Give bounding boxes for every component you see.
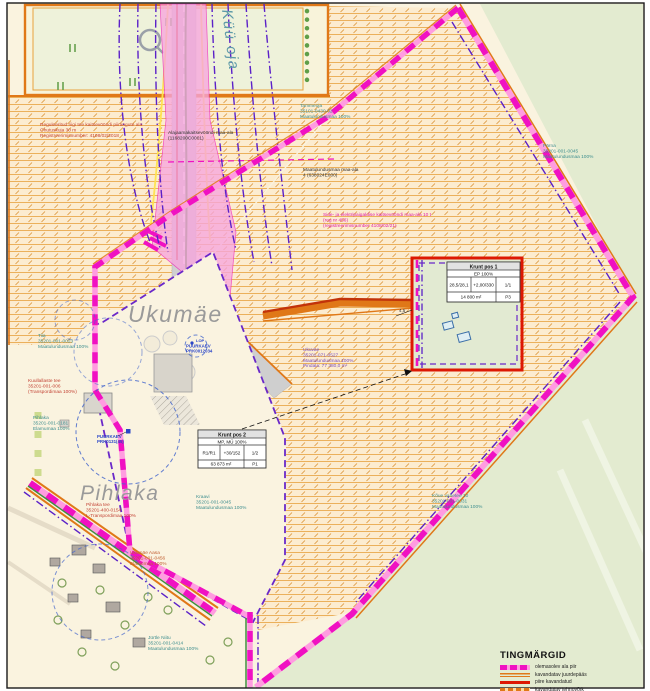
svg-text:+30/152: +30/152 [224,451,241,456]
svg-text:1/2: 1/2 [252,451,259,456]
dimension-label: 4,5 [399,308,406,313]
legend-item: kavandatav juurdepääs [500,672,648,679]
ukumae-title: Ukumäe [128,301,223,327]
svg-text:14 800 m²: 14 800 m² [461,295,482,300]
legend-item-label: kavandatav tehnovõrk [535,687,584,691]
legend-swatch-fence [500,681,530,684]
building-rights-table-pos1: Krunt pos 1 EP 100% 28,5/28,1 +2,00/330 … [447,262,520,302]
legend-item-label: olemasolev ala piir [535,664,576,670]
pihlaka-title: Pihlaka [80,482,159,505]
legend: TINGMÄRGID olemasolev ala piir kavandata… [500,650,648,691]
svg-text:EP 100%: EP 100% [474,272,493,277]
svg-text:R1/R1: R1/R1 [202,451,215,456]
svg-text:28,5/28,1: 28,5/28,1 [449,283,469,288]
plan-map-canvas: Küü oja Ukumäe Pihlaka Reguleeritud riig… [0,0,650,691]
svg-text:63 873 m²: 63 873 m² [211,462,232,467]
building-footprint [154,354,192,392]
legend-item-label: kavandatav juurdepääs [535,672,587,678]
well-symbol [126,429,131,434]
well-label-1: PUURKAEV PRK0131(45) [97,434,124,444]
svg-text:Krunt pos 2: Krunt pos 2 [218,433,246,439]
svg-text:+2,00/330: +2,00/330 [473,283,494,288]
tree-symbol [144,336,160,352]
legend-swatch-boundary [500,665,530,670]
svg-text:MP, MÜ 100%: MP, MÜ 100% [217,439,246,445]
legend-swatch-access [500,673,530,677]
tree-symbol [163,331,177,345]
legend-title: TINGMÄRGID [500,650,648,661]
legend-item: piire kavandatud [500,679,648,686]
legend-item-label: piire kavandatud [535,679,572,685]
svg-text:P1: P1 [252,462,258,467]
svg-text:P3: P3 [505,295,511,300]
svg-text:Krunt pos 1: Krunt pos 1 [470,265,498,271]
legend-item: olemasolev ala piir [500,664,648,671]
legend-item: kavandatav tehnovõrk [500,687,648,691]
plan-map: Küü oja Ukumäe Pihlaka Reguleeritud riig… [0,0,650,691]
svg-text:1/1: 1/1 [505,283,512,288]
building-rights-table-pos2: Krunt pos 2 MP, MÜ 100% R1/R1 +30/152 1/… [198,430,266,468]
